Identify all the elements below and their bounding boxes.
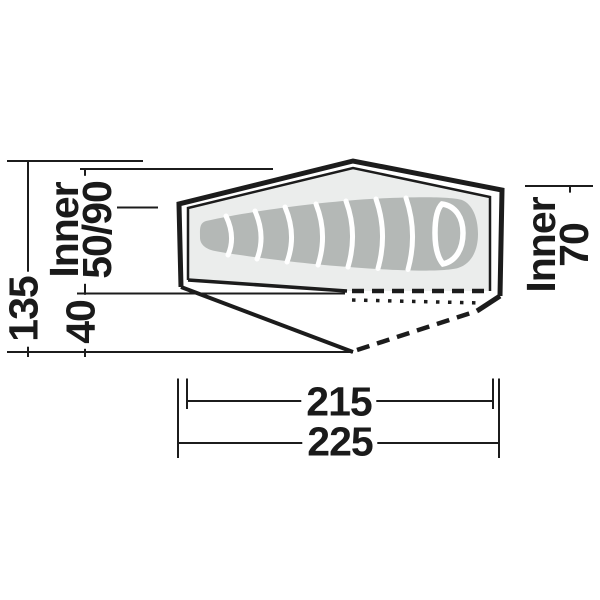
vestibule-guy-line bbox=[181, 287, 353, 352]
tent-dimension-diagram: 135 Inner 50/90 40 Inner 70 215 225 bbox=[0, 0, 600, 600]
label-inner-length-215: 215 bbox=[301, 384, 376, 421]
vestibule-dashed-edge bbox=[357, 311, 477, 350]
label-inner-width-value: 50/90 bbox=[81, 181, 114, 279]
label-vestibule-depth-40: 40 bbox=[63, 295, 100, 349]
label-total-width-135: 135 bbox=[6, 271, 43, 346]
label-inner-right-70: Inner 70 bbox=[523, 192, 593, 297]
flysheet-corner-edge bbox=[477, 296, 500, 311]
hidden-bottom-dotted-line bbox=[352, 300, 482, 303]
label-inner-width-50-90: Inner 50/90 bbox=[46, 176, 116, 284]
label-total-length-225: 225 bbox=[302, 424, 377, 461]
